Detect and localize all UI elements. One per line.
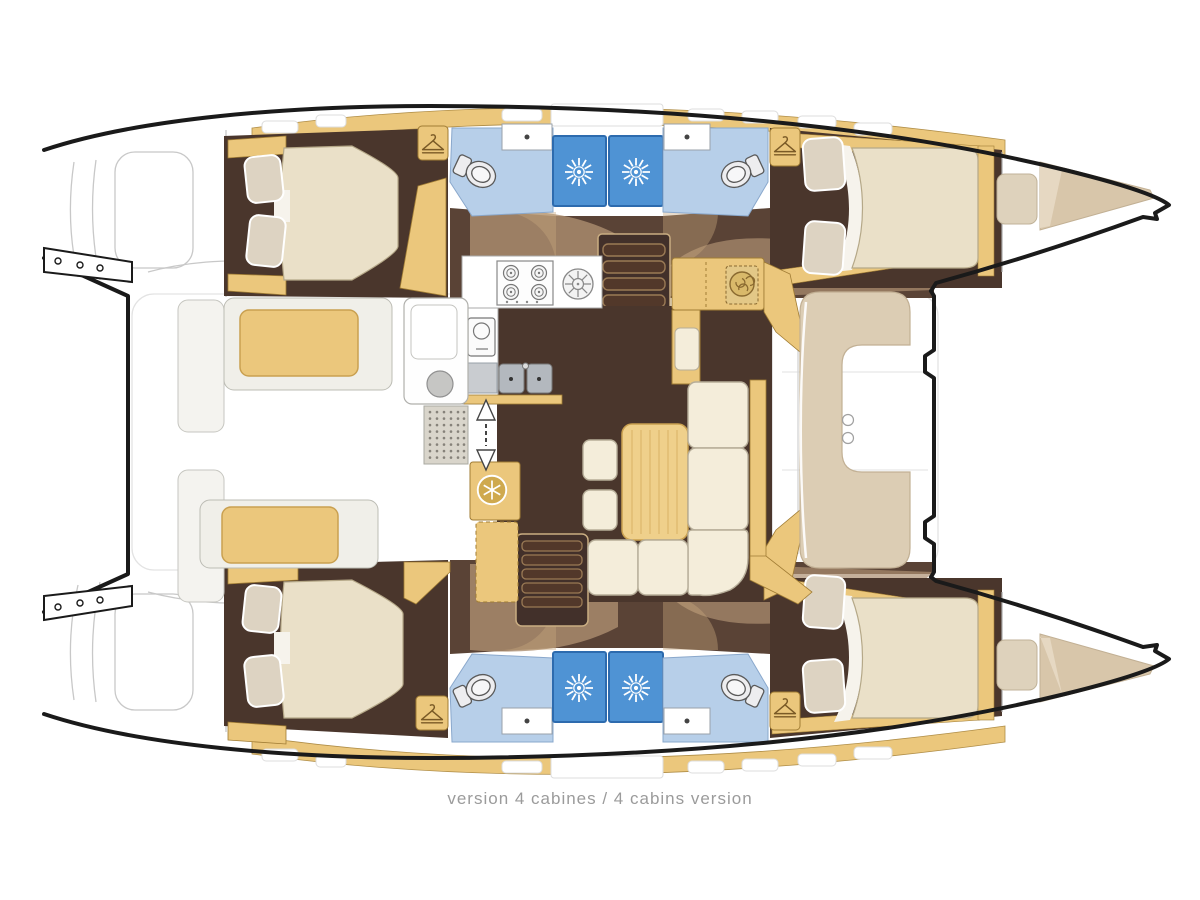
berth-port-forward	[852, 148, 978, 268]
round-burner	[563, 269, 593, 299]
stove	[497, 261, 553, 305]
wardrobe-port-forward	[770, 128, 800, 166]
forward-cockpit	[800, 292, 910, 568]
berth-starboard-forward	[852, 598, 978, 718]
shower-stalls-starboard	[553, 652, 663, 722]
stool	[583, 440, 617, 480]
round-hatch	[427, 371, 453, 397]
companionway-arrows-icon	[477, 400, 495, 470]
cupholder	[843, 433, 854, 444]
compass-icon	[730, 272, 755, 296]
fridge-freezer	[470, 462, 520, 602]
cockpit-bench-starboard	[200, 500, 378, 568]
bathroom-starboard-forward	[663, 654, 768, 742]
davit-bracket-port	[44, 248, 132, 282]
aft-cockpit	[178, 298, 392, 602]
shower-stalls-port	[553, 136, 663, 206]
cabin-port-forward	[764, 128, 1002, 288]
saloon-table	[622, 424, 688, 540]
berth-starboard-aft	[281, 580, 404, 718]
stairs-starboard	[516, 534, 588, 626]
berth-port-aft	[281, 146, 399, 280]
stool	[583, 490, 617, 530]
cupholder	[843, 415, 854, 426]
double-sink	[468, 363, 552, 393]
wardrobe-port-aft	[418, 126, 448, 160]
forward-lounge-seat	[800, 292, 910, 568]
davit-bracket-starboard	[44, 586, 132, 620]
nav-seat	[675, 328, 699, 370]
aft-galley-module	[404, 298, 468, 404]
wardrobe-starboard-aft	[416, 696, 448, 730]
cabin-port-aft	[224, 126, 448, 298]
entry-mat	[424, 406, 468, 464]
bathroom-port-forward	[663, 124, 768, 216]
wardrobe-starboard-forward	[770, 692, 800, 730]
floorplan-svg	[0, 0, 1200, 900]
oven	[468, 318, 495, 356]
version-caption: version 4 cabines / 4 cabins version	[0, 789, 1200, 809]
cockpit-bench-port	[224, 298, 392, 390]
bathroom-starboard-aft	[450, 654, 553, 742]
sofa-backrest	[750, 380, 766, 562]
cabin-starboard-aft	[224, 560, 450, 744]
bathroom-port-aft	[450, 124, 553, 216]
catamaran-floorplan-page: version 4 cabines / 4 cabins version	[0, 0, 1200, 900]
snowflake-fridge-icon	[478, 476, 507, 505]
